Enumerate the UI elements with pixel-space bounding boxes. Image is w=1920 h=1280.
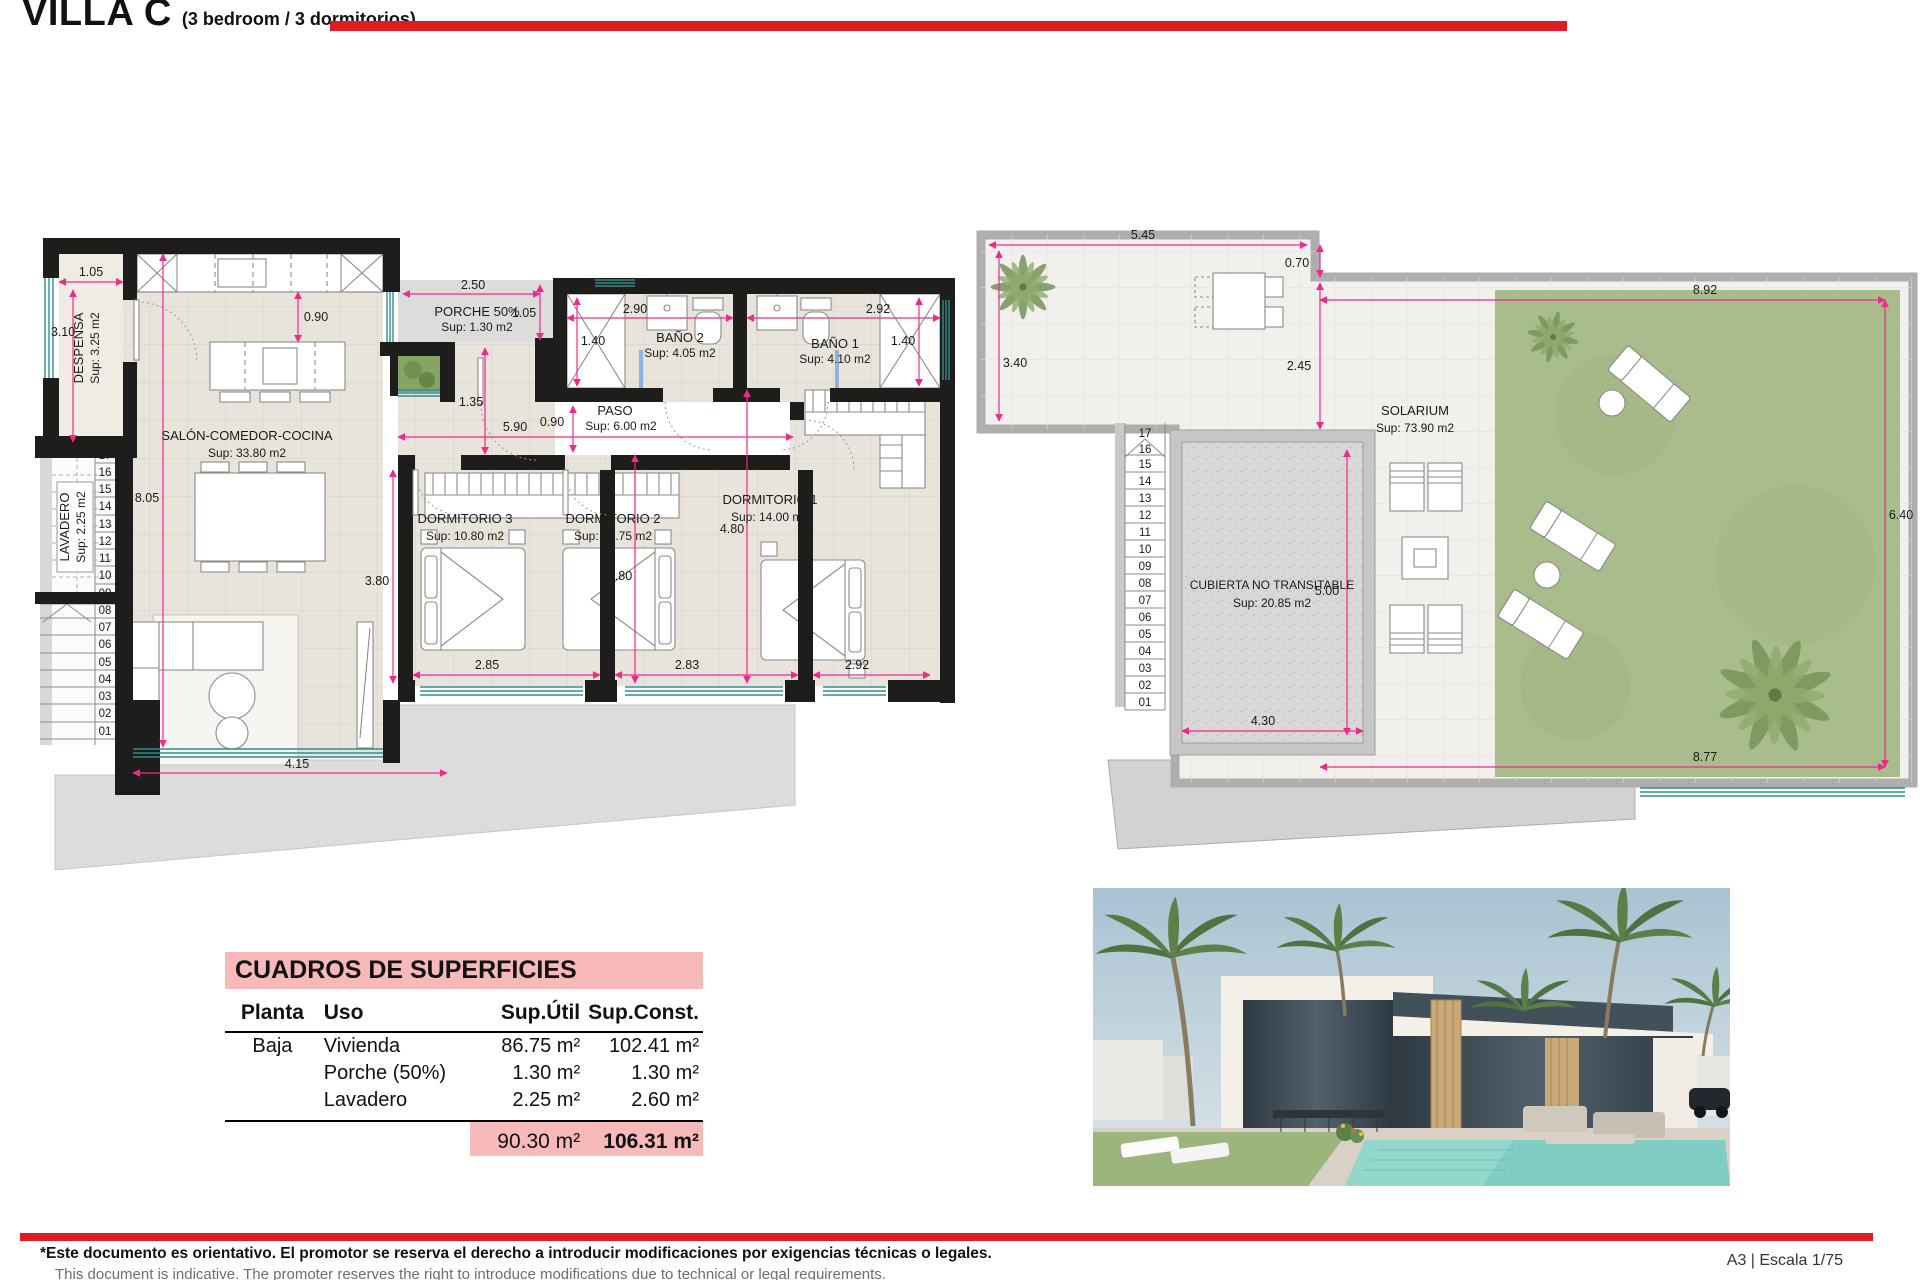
table-row: Lavadero 2.25 m² 2.60 m² bbox=[225, 1087, 703, 1121]
planter bbox=[398, 356, 440, 392]
red-accent-bar-bottom bbox=[20, 1233, 1873, 1241]
svg-text:06: 06 bbox=[1139, 612, 1152, 624]
svg-text:4.30: 4.30 bbox=[1251, 714, 1275, 728]
svg-text:0.70: 0.70 bbox=[1285, 256, 1309, 270]
svg-text:13: 13 bbox=[1139, 493, 1152, 505]
sheet-scale-info: A3 | Escala 1/75 bbox=[1727, 1252, 1843, 1270]
svg-text:17: 17 bbox=[1139, 428, 1152, 440]
svg-text:4.80: 4.80 bbox=[720, 522, 744, 536]
svg-text:8.92: 8.92 bbox=[1693, 283, 1717, 297]
room-label-solarium: SOLARIUM bbox=[1381, 403, 1449, 418]
col-planta: Planta bbox=[225, 999, 320, 1032]
room-label-bano1: BAÑO 1 bbox=[811, 336, 859, 351]
room-label-bano2: BAÑO 2 bbox=[656, 330, 704, 345]
svg-text:6.40: 6.40 bbox=[1889, 508, 1913, 522]
ground-floor-plan: 17 16 15 14 13 12 11 10 09 08 07 06 05 0… bbox=[35, 230, 970, 880]
svg-text:3.80: 3.80 bbox=[608, 569, 632, 583]
roof-staircase: 17 16 15 14 13 12 11 10 09 08 07 06 05 0… bbox=[1115, 423, 1165, 710]
svg-text:04: 04 bbox=[99, 674, 112, 686]
svg-text:16: 16 bbox=[99, 467, 112, 479]
svg-text:Sup: 4.05 m2: Sup: 4.05 m2 bbox=[644, 346, 716, 360]
svg-text:Sup: 4.10 m2: Sup: 4.10 m2 bbox=[799, 352, 871, 366]
svg-text:03: 03 bbox=[1139, 663, 1152, 675]
svg-text:2.45: 2.45 bbox=[1287, 359, 1311, 373]
svg-text:02: 02 bbox=[1139, 680, 1152, 692]
svg-text:Sup: 10.75 m2: Sup: 10.75 m2 bbox=[574, 529, 652, 543]
total-sup-util: 90.30 m² bbox=[470, 1121, 584, 1156]
svg-text:16: 16 bbox=[1139, 444, 1152, 456]
svg-text:0.90: 0.90 bbox=[304, 310, 328, 324]
svg-text:12: 12 bbox=[1139, 510, 1152, 522]
room-label-salon: SALÓN-COMEDOR-COCINA bbox=[161, 428, 333, 443]
room-label-despensa: DESPENSA bbox=[71, 312, 86, 383]
svg-text:04: 04 bbox=[1139, 646, 1152, 658]
svg-text:3.80: 3.80 bbox=[365, 574, 389, 588]
areas-table: CUADROS DE SUPERFICIES Planta Uso Sup.Út… bbox=[225, 952, 703, 1156]
svg-text:15: 15 bbox=[1139, 459, 1152, 471]
svg-text:03: 03 bbox=[99, 691, 112, 703]
areas-table-title: CUADROS DE SUPERFICIES bbox=[225, 952, 703, 989]
room-label-porche: PORCHE 50% bbox=[434, 304, 520, 319]
areas-table-header-row: Planta Uso Sup.Útil Sup.Const. bbox=[225, 999, 703, 1032]
svg-text:2.85: 2.85 bbox=[475, 658, 499, 672]
svg-text:06: 06 bbox=[99, 639, 112, 651]
svg-text:Sup: 33.80 m2: Sup: 33.80 m2 bbox=[208, 446, 286, 460]
svg-text:5.90: 5.90 bbox=[503, 420, 527, 434]
svg-text:10: 10 bbox=[99, 570, 112, 582]
svg-text:07: 07 bbox=[99, 622, 112, 634]
svg-text:14: 14 bbox=[99, 501, 112, 513]
svg-text:08: 08 bbox=[1139, 578, 1152, 590]
room-label-dorm1: DORMITORIO 1 bbox=[722, 492, 817, 507]
room-label-cubierta: CUBIERTA NO TRANSITABLE bbox=[1190, 578, 1354, 592]
svg-text:02: 02 bbox=[99, 708, 112, 720]
pool-edge-lines bbox=[1640, 788, 1905, 796]
svg-text:5.45: 5.45 bbox=[1131, 228, 1155, 242]
svg-text:2.92: 2.92 bbox=[845, 658, 869, 672]
table-row: Baja Vivienda 86.75 m² 102.41 m² bbox=[225, 1032, 703, 1060]
total-sup-const: 106.31 m² bbox=[584, 1121, 703, 1156]
bed-dorm2 bbox=[563, 530, 675, 650]
col-uso: Uso bbox=[320, 999, 470, 1032]
svg-text:11: 11 bbox=[99, 553, 111, 565]
svg-text:Sup: 10.80 m2: Sup: 10.80 m2 bbox=[426, 529, 504, 543]
col-sup-const: Sup.Const. bbox=[584, 999, 703, 1032]
room-label-dorm2: DORMITORIO 2 bbox=[565, 511, 660, 526]
red-accent-bar-top bbox=[330, 21, 1567, 31]
svg-text:Sup: 6.00 m2: Sup: 6.00 m2 bbox=[585, 419, 657, 433]
svg-text:1.40: 1.40 bbox=[891, 334, 915, 348]
svg-text:14: 14 bbox=[1139, 476, 1152, 488]
svg-text:8.77: 8.77 bbox=[1693, 750, 1717, 764]
roof-stair-numbers: 17 16 15 14 13 12 11 10 09 08 07 06 05 0… bbox=[1139, 428, 1152, 709]
disclaimer-english: This document is indicative. The promote… bbox=[55, 1266, 886, 1280]
villa-title: VILLA C bbox=[22, 0, 172, 34]
svg-text:Sup: 2.25 m2: Sup: 2.25 m2 bbox=[74, 491, 88, 563]
svg-text:08: 08 bbox=[99, 605, 112, 617]
col-sup-util: Sup.Útil bbox=[470, 999, 584, 1032]
svg-text:10: 10 bbox=[1139, 544, 1152, 556]
svg-text:3.40: 3.40 bbox=[1003, 356, 1027, 370]
svg-text:2.50: 2.50 bbox=[461, 278, 485, 292]
svg-text:07: 07 bbox=[1139, 595, 1152, 607]
svg-text:2.83: 2.83 bbox=[675, 658, 699, 672]
room-label-lavadero: LAVADERO bbox=[57, 493, 72, 562]
room-label-paso: PASO bbox=[597, 403, 632, 418]
svg-text:Sup: 14.00 m2: Sup: 14.00 m2 bbox=[731, 510, 809, 524]
svg-text:8.05: 8.05 bbox=[135, 491, 159, 505]
svg-text:11: 11 bbox=[1139, 527, 1151, 539]
svg-text:Sup: 1.30 m2: Sup: 1.30 m2 bbox=[441, 320, 513, 334]
svg-text:09: 09 bbox=[1139, 561, 1152, 573]
svg-text:Sup: 73.90 m2: Sup: 73.90 m2 bbox=[1376, 421, 1454, 435]
table-total-row: 90.30 m² 106.31 m² bbox=[225, 1121, 703, 1156]
pool bbox=[1345, 1140, 1730, 1186]
disclaimer-spanish: *Este documento es orientativo. El promo… bbox=[40, 1245, 992, 1263]
svg-text:01: 01 bbox=[99, 726, 112, 738]
svg-text:1.05: 1.05 bbox=[79, 265, 103, 279]
svg-text:15: 15 bbox=[99, 484, 112, 496]
svg-text:Sup: 3.25 m2: Sup: 3.25 m2 bbox=[88, 312, 102, 384]
svg-text:05: 05 bbox=[1139, 629, 1152, 641]
svg-text:12: 12 bbox=[99, 536, 112, 548]
svg-text:2.90: 2.90 bbox=[623, 302, 647, 316]
svg-text:05: 05 bbox=[99, 657, 112, 669]
villa-render bbox=[1093, 888, 1730, 1186]
table-row: Porche (50%) 1.30 m² 1.30 m² bbox=[225, 1060, 703, 1087]
front-lawn bbox=[1093, 1132, 1348, 1186]
cubierta-block bbox=[1170, 430, 1375, 755]
roof-solarium-plan: 17 16 15 14 13 12 11 10 09 08 07 06 05 0… bbox=[975, 215, 1920, 865]
bed-dorm3 bbox=[421, 530, 525, 650]
svg-text:2.92: 2.92 bbox=[866, 302, 890, 316]
room-label-dorm3: DORMITORIO 3 bbox=[417, 511, 512, 526]
plan-sheet: VILLA C(3 bedroom / 3 dormitorios) bbox=[0, 0, 1920, 1280]
svg-text:1.35: 1.35 bbox=[459, 395, 483, 409]
svg-text:01: 01 bbox=[1139, 697, 1152, 709]
svg-text:Sup: 20.85 m2: Sup: 20.85 m2 bbox=[1233, 596, 1311, 610]
svg-text:0.90: 0.90 bbox=[540, 415, 564, 429]
svg-text:1.40: 1.40 bbox=[581, 334, 605, 348]
svg-text:13: 13 bbox=[99, 519, 112, 531]
svg-text:4.15: 4.15 bbox=[285, 757, 309, 771]
